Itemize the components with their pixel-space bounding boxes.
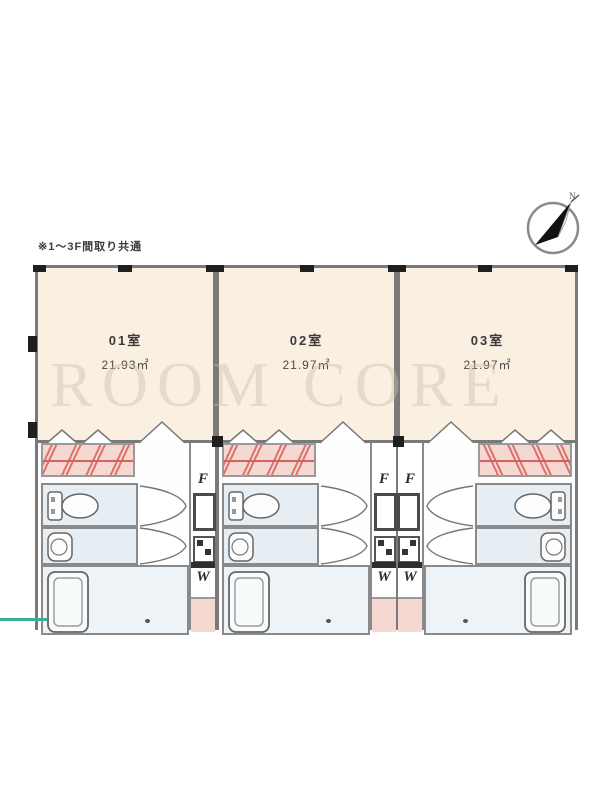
room-name-label: 03室 <box>400 330 575 349</box>
washbasin-room <box>475 527 572 565</box>
wall-segment <box>388 265 406 272</box>
washer-label: W <box>398 569 422 586</box>
closet-shelf-line <box>43 460 133 462</box>
floor-common-caption: ※1〜3F間取り共通 <box>38 238 142 254</box>
toilet-icon <box>228 489 286 523</box>
washbasin-room <box>41 527 138 565</box>
door-swing-icon <box>138 485 188 527</box>
floorplan-page: ※1〜3F間取り共通 ROOM CORE N 01室 21.93㎡ <box>0 0 600 800</box>
entry-door-icon <box>427 421 475 444</box>
wall-segment <box>565 265 578 272</box>
drain-icon <box>463 619 468 623</box>
porch-strip <box>191 597 215 632</box>
living-room-03: 03室 21.97㎡ <box>397 265 578 443</box>
range-icon <box>374 536 396 563</box>
door-swing-icon <box>425 527 475 565</box>
appliance-column: F W <box>370 443 396 630</box>
door-swing-icon <box>138 527 188 565</box>
unit-03-lower-section: F W <box>397 443 578 630</box>
bathroom <box>41 565 189 635</box>
north-label: N <box>569 191 576 201</box>
closet-hatch <box>41 443 135 477</box>
door-swing-icon <box>319 485 369 527</box>
wall-segment <box>206 265 224 272</box>
closet-shelf-line <box>224 460 314 462</box>
corridor <box>424 443 475 565</box>
closet-hatch <box>478 443 572 477</box>
washer-label: W <box>372 569 396 586</box>
wall-segment <box>118 265 132 272</box>
unit-02-lower-section: F W <box>216 443 397 630</box>
living-room-02: 02室 21.97㎡ <box>216 265 397 443</box>
room-area-label: 21.97㎡ <box>400 356 575 373</box>
counter-wall <box>398 562 422 568</box>
unit-01: 01室 21.93㎡ <box>35 265 216 630</box>
wall-segment <box>300 265 314 272</box>
refrigerator-icon <box>397 493 420 531</box>
sink-icon <box>47 532 81 562</box>
corridor <box>138 443 189 565</box>
counter-wall <box>372 562 396 568</box>
toilet-room <box>222 483 319 527</box>
closet-door-icon <box>227 429 259 444</box>
refrigerator-icon <box>374 493 397 531</box>
closet-door-icon <box>82 429 114 444</box>
corridor <box>319 443 370 565</box>
bathroom <box>424 565 572 635</box>
room-name-label: 01室 <box>38 330 213 349</box>
appliance-column: F W <box>189 443 215 630</box>
entry-door-icon <box>138 421 186 444</box>
wall-segment <box>212 436 223 447</box>
closet-door-icon <box>535 429 567 444</box>
counter-wall <box>191 562 215 568</box>
bathroom <box>222 565 370 635</box>
sink-icon <box>228 532 262 562</box>
porch-strip <box>398 597 422 632</box>
wall-stub <box>28 422 37 438</box>
porch-strip <box>372 597 396 632</box>
wall-stub <box>28 336 37 352</box>
closet-shelf-line <box>480 460 570 462</box>
bathtub-icon <box>524 571 566 633</box>
drain-icon <box>326 619 331 623</box>
appliance-column: F W <box>398 443 424 630</box>
wall-segment <box>478 265 492 272</box>
unit-02: 02室 21.97㎡ <box>216 265 397 630</box>
closet-door-icon <box>263 429 295 444</box>
room-area-label: 21.93㎡ <box>38 356 213 373</box>
unit-03: 03室 21.97㎡ <box>397 265 578 630</box>
room-name-label: 02室 <box>219 330 394 349</box>
closet-door-icon <box>499 429 531 444</box>
refrigerator-icon <box>193 493 216 531</box>
toilet-icon <box>508 489 566 523</box>
washer-label: W <box>191 569 215 586</box>
door-swing-icon <box>425 485 475 527</box>
refrigerator-label: F <box>191 471 215 488</box>
bathtub-icon <box>47 571 89 633</box>
closet-hatch <box>222 443 316 477</box>
drain-icon <box>145 619 150 623</box>
wall-segment <box>393 436 404 447</box>
refrigerator-label: F <box>398 471 422 488</box>
living-room-01: 01室 21.93㎡ <box>35 265 216 443</box>
toilet-icon <box>47 489 105 523</box>
washbasin-room <box>222 527 319 565</box>
bathtub-icon <box>228 571 270 633</box>
compass-icon <box>521 192 587 258</box>
wall-segment <box>33 265 46 272</box>
range-icon <box>193 536 215 563</box>
entry-door-icon <box>319 421 367 444</box>
unit-01-lower-section: F W <box>35 443 216 630</box>
room-area-label: 21.97㎡ <box>219 356 394 373</box>
teal-boundary-line <box>0 618 47 621</box>
refrigerator-label: F <box>372 471 396 488</box>
closet-door-icon <box>46 429 78 444</box>
sink-icon <box>532 532 566 562</box>
door-swing-icon <box>319 527 369 565</box>
range-icon <box>398 536 420 563</box>
toilet-room <box>475 483 572 527</box>
toilet-room <box>41 483 138 527</box>
